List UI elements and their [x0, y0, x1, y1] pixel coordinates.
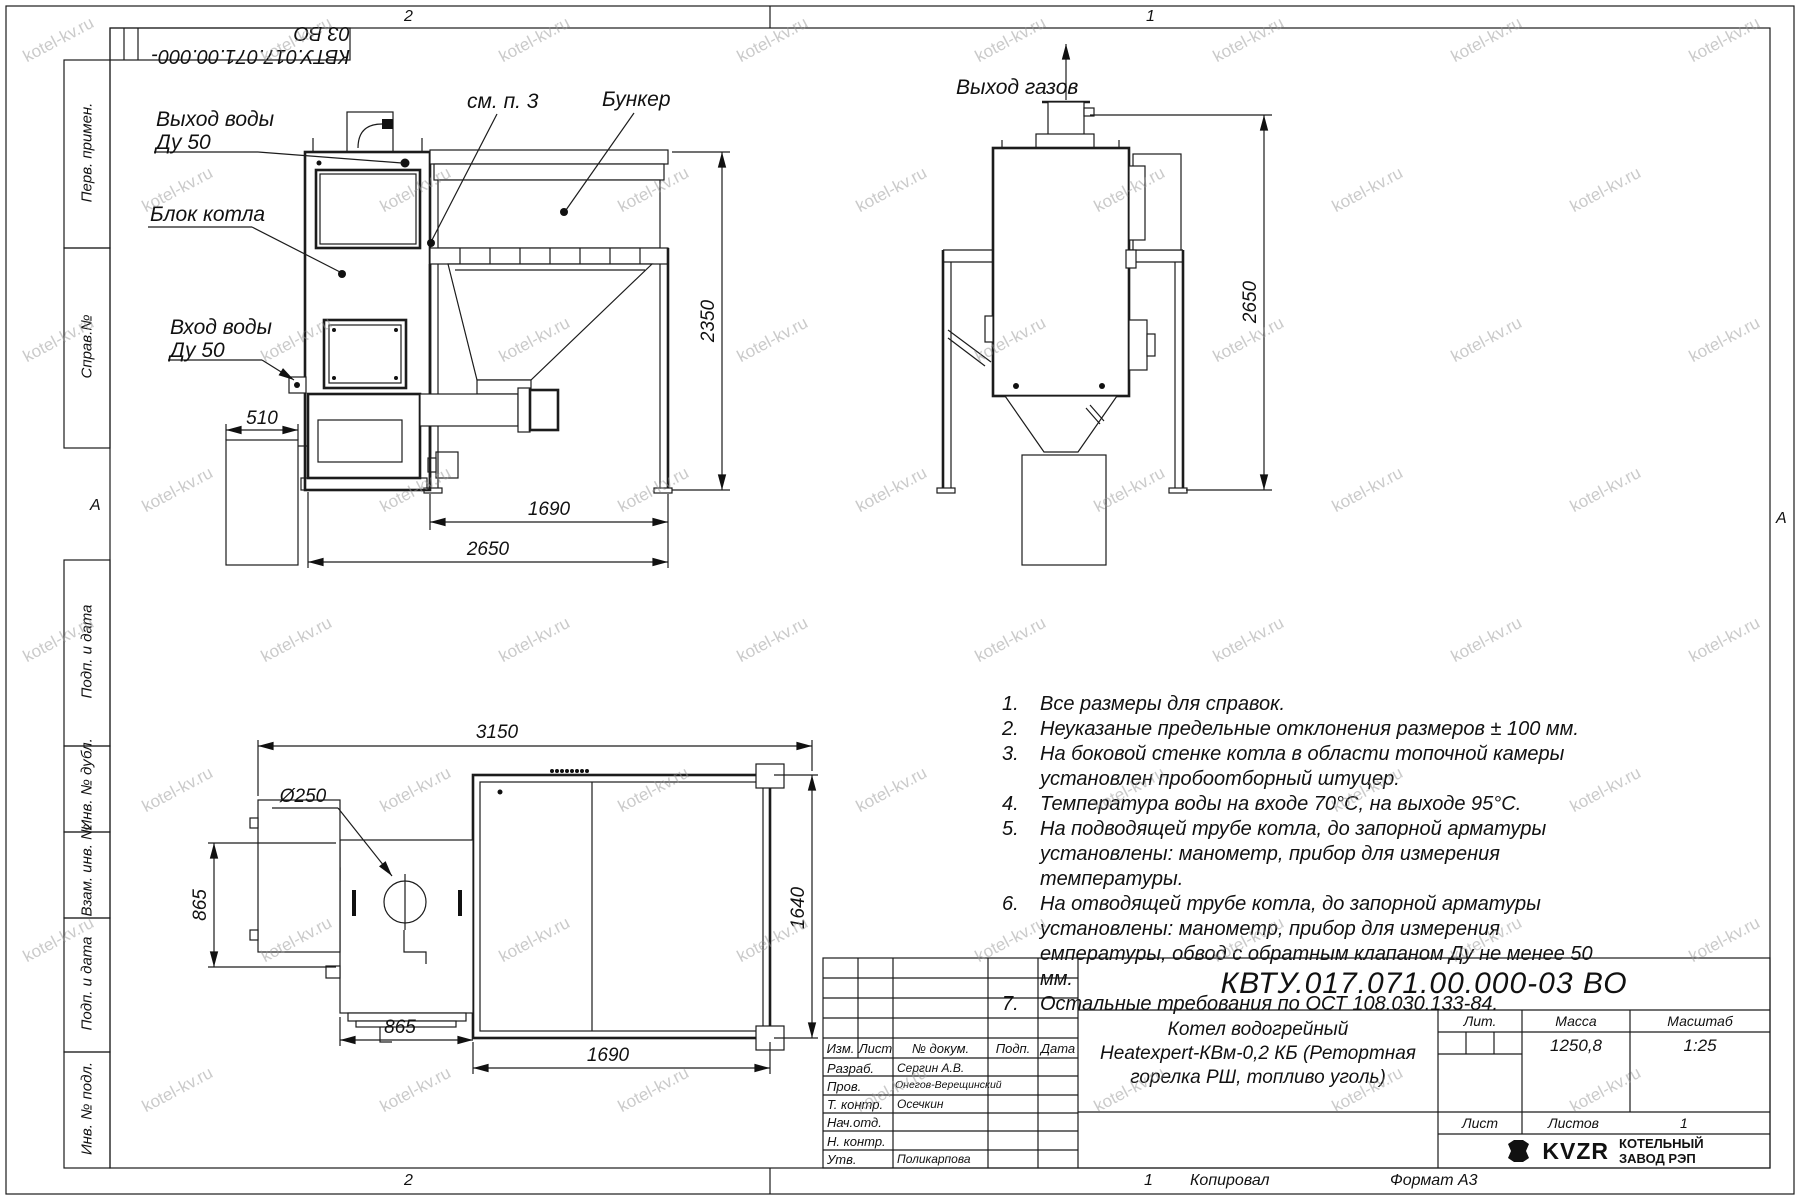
plan-dim-1640: 1640 [788, 886, 809, 929]
doc-number-top: КВТУ.017.071.00.000-03 ВО [138, 28, 350, 60]
staff-name: Сергин А.В. [897, 1061, 964, 1075]
stamp-podp-data-1: Подп. и дата [79, 559, 96, 745]
stamp-perv-primen: Перв. примен. [79, 59, 96, 247]
front-label-boiler-block: Блок котла [150, 203, 265, 226]
note-text: Все размеры для справок. [1040, 692, 1608, 717]
plan-dim-865-horizontal: 865 [384, 1017, 416, 1038]
header-list: Лист [858, 1038, 893, 1058]
mass-value: 1250,8 [1522, 1034, 1630, 1058]
product-name-line1: Котел водогрейный [1078, 1018, 1438, 1042]
mass-label: Масса [1522, 1010, 1630, 1032]
note-text: Температура воды на входе 70°С, на выход… [1040, 792, 1608, 817]
footer-copied-label: Копировал [1190, 1172, 1270, 1190]
front-label-see-note: см. п. 3 [467, 90, 539, 113]
note-text: На боковой стенке котла в области топочн… [1040, 742, 1608, 792]
stamp-vzam-inv: Взам. инв. № [79, 831, 96, 917]
note-number: 3. [1002, 742, 1040, 792]
side-dim-2650: 2650 [1240, 280, 1261, 324]
sheet-label: Лист [1438, 1112, 1522, 1134]
staff-role: Н. контр. [827, 1134, 886, 1149]
scale-label: Масштаб [1630, 1010, 1770, 1032]
front-dim-1690: 1690 [528, 499, 571, 520]
side-label-gas-out: Выход газов [956, 76, 1078, 99]
note-text: На подводящей трубе котла, до запорной а… [1040, 817, 1608, 892]
zone-top-right: 1 [1146, 8, 1155, 26]
title-doc-number: КВТУ.017.071.00.000-03 ВО [1078, 958, 1770, 1010]
plan-dim-diameter: Ø250 [279, 786, 327, 807]
staff-role: Нач.отд. [827, 1115, 882, 1130]
plan-dim-865-vertical: 865 [190, 889, 211, 921]
product-name-line2: Heatexpert-КВм-0,2 КБ (Ретортная [1078, 1042, 1438, 1066]
zone-letter-left: А [90, 497, 101, 515]
front-label-water-out-1: Выход воды [156, 108, 275, 131]
staff-role: Утв. [827, 1152, 857, 1167]
plan-dim-3150: 3150 [476, 722, 519, 743]
side-view: Выход газов 2650 [937, 44, 1272, 565]
note-number: 6. [1002, 892, 1040, 992]
note-number: 2. [1002, 717, 1040, 742]
front-label-water-in-2: Ду 50 [168, 339, 225, 362]
note-item: 4.Температура воды на входе 70°С, на вых… [1002, 792, 1608, 817]
header-izm: Изм. [823, 1038, 858, 1058]
front-dim-2650: 2650 [466, 539, 510, 560]
sheets-label: Листов [1548, 1115, 1599, 1131]
note-number: 5. [1002, 817, 1040, 892]
zone-top-left: 2 [404, 8, 413, 26]
company-logo-text: KVZR [1542, 1138, 1609, 1165]
stamp-sprav-no: Справ.№ [79, 247, 96, 447]
staff-role: Т. контр. [827, 1097, 883, 1112]
note-item: 3.На боковой стенке котла в области топо… [1002, 742, 1608, 792]
company-cell: KVZR КОТЕЛЬНЫЙ ЗАВОД РЭП [1438, 1134, 1770, 1168]
front-dim-2350: 2350 [698, 299, 719, 343]
note-item: 2.Неуказаные предельные отклонения разме… [1002, 717, 1608, 742]
staff-name: Осечкин [897, 1097, 944, 1111]
header-docnum: № докум. [893, 1038, 988, 1058]
note-item: 1.Все размеры для справок. [1002, 692, 1608, 717]
drawing-sheet: kotel-kv.rukotel-kv.rukotel-kv.rukotel-k… [0, 0, 1800, 1200]
zone-bottom-left: 2 [404, 1172, 413, 1190]
product-name-line3: горелка РШ, топливо уголь) [1078, 1066, 1438, 1090]
scale-value: 1:25 [1630, 1034, 1770, 1058]
front-view: Выход воды Ду 50 см. п. 3 Бункер Блок ко… [148, 88, 730, 568]
staff-name: Поликарпова [897, 1152, 971, 1166]
kvzr-logo-icon [1504, 1138, 1532, 1164]
zone-bottom-right: 1 [1144, 1172, 1153, 1190]
note-number: 1. [1002, 692, 1040, 717]
stamp-inv-podl: Инв. № подл. [79, 1051, 96, 1167]
lit-label: Лит. [1438, 1010, 1522, 1032]
sheets-value: 1 [1680, 1115, 1688, 1131]
staff-role: Разраб. [827, 1061, 874, 1076]
staff-name: Онегов-Верещинский [895, 1079, 1002, 1091]
company-name-line2: ЗАВОД РЭП [1619, 1151, 1704, 1166]
front-label-bunker: Бункер [602, 88, 671, 111]
front-label-water-out-2: Ду 50 [154, 131, 211, 154]
front-dim-510: 510 [246, 408, 278, 429]
note-number: 4. [1002, 792, 1040, 817]
staff-role: Пров. [827, 1079, 861, 1094]
note-text: Неуказаные предельные отклонения размеро… [1040, 717, 1608, 742]
plan-dim-1690: 1690 [587, 1045, 630, 1066]
plan-view: 3150 Ø250 865 865 1690 1640 [190, 722, 818, 1074]
company-name-line1: КОТЕЛЬНЫЙ [1619, 1136, 1704, 1151]
note-item: 5.На подводящей трубе котла, до запорной… [1002, 817, 1608, 892]
footer-format-label: Формат А3 [1390, 1172, 1478, 1190]
header-data: Дата [1038, 1038, 1078, 1058]
stamp-inv-dubl: Инв. № дубл. [79, 745, 96, 831]
stamp-podp-data-2: Подп. и дата [79, 917, 96, 1051]
zone-letter-right: А [1776, 510, 1787, 528]
header-podp: Подп. [988, 1038, 1038, 1058]
note-number: 7. [1002, 992, 1040, 1017]
front-label-water-in-1: Вход воды [170, 316, 272, 339]
